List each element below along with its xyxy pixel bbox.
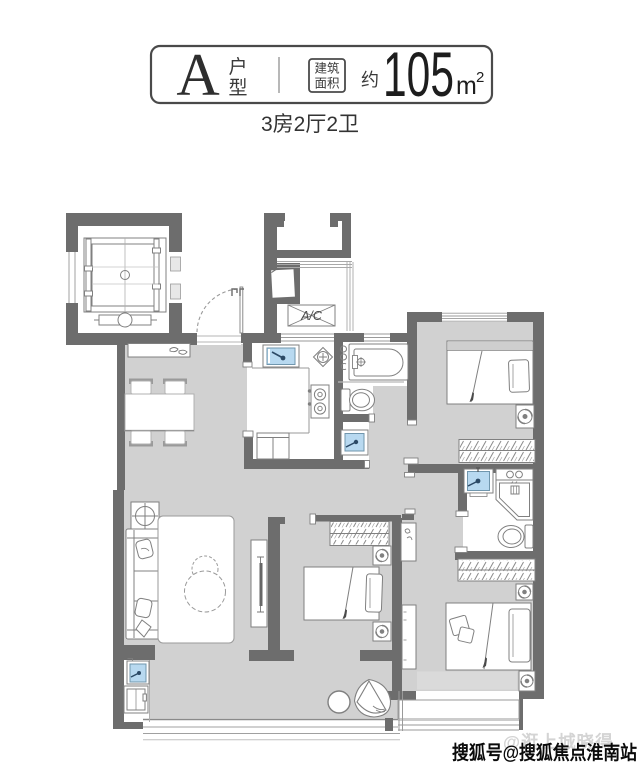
svg-text:搜狐号@搜狐焦点淮南站: 搜狐号@搜狐焦点淮南站 — [452, 741, 637, 764]
svg-text:2: 2 — [476, 69, 484, 86]
svg-text:型: 型 — [228, 77, 247, 99]
svg-text:105: 105 — [383, 40, 454, 110]
svg-text:A/C: A/C — [300, 309, 323, 323]
svg-text:m: m — [456, 72, 477, 100]
svg-text:约: 约 — [361, 70, 379, 90]
svg-text:面积: 面积 — [314, 77, 339, 91]
svg-text:户: 户 — [228, 56, 247, 78]
svg-text:建筑: 建筑 — [314, 61, 340, 76]
svg-text:3房2厅2卫: 3房2厅2卫 — [261, 113, 359, 136]
svg-text:A: A — [176, 42, 219, 108]
